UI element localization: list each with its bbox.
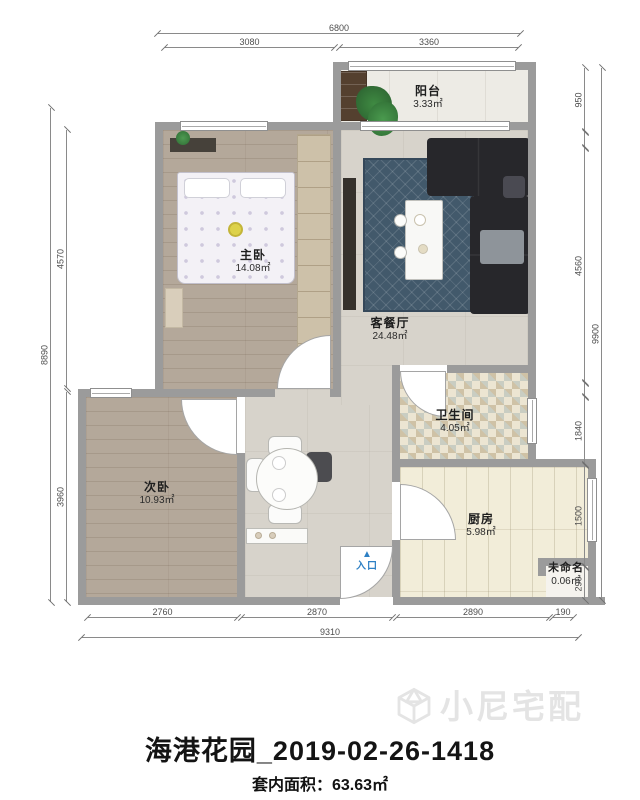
dining-table [256,448,318,510]
dim-value: 290 [575,576,584,591]
dim-value: 6800 [329,24,349,33]
stool [394,214,407,227]
watermark: 小尼宅配 [394,686,584,726]
wall [330,389,341,397]
dim-top-seg: 3080 [165,47,334,48]
room-name: 主卧 [235,248,270,262]
decor-bowl [269,532,276,539]
watermark-brand: 小尼宅配 [440,690,584,723]
dim-bottom-seg: 2870 [242,617,392,618]
room-area: 4.05㎡ [435,423,474,435]
dim-top-seg: 3360 [340,47,518,48]
bench [165,288,183,328]
window [587,478,597,542]
wall [393,597,605,605]
label-balcony: 阳台 3.33㎡ [413,84,442,111]
dim-value: 190 [555,608,570,617]
plan-title: 海港花园_2019-02-26-1418 [0,729,640,768]
window [348,61,516,71]
tv-cabinet [343,178,356,310]
dim-right-seg: 290 [584,567,585,600]
room-name: 未命名 [548,562,584,575]
wall [392,459,596,467]
dim-left-seg: 3960 [66,392,67,602]
dim-left-seg: 4570 [66,130,67,388]
room-hallway-connector[interactable] [341,365,392,405]
wall [237,453,245,597]
balcony-sliding-door [360,121,510,131]
room-name: 阳台 [413,84,442,98]
plant-small-icon [176,131,190,145]
area-summary-value: 63.63㎡ [332,777,388,794]
room-name: 卫生间 [435,408,474,422]
entry-label: 入口 [352,560,382,573]
dim-value: 4560 [575,255,584,275]
dim-right-seg: 1500 [584,465,585,567]
room-area: 5.98㎡ [466,527,495,539]
dim-value: 1840 [575,421,584,441]
place-setting [272,456,286,470]
wall [333,62,341,130]
label-kitchen: 厨房 5.98㎡ [466,512,495,539]
wall [155,122,163,397]
dim-right-seg: 4560 [584,148,585,383]
wall [528,62,536,373]
room-area: 24.48㎡ [370,331,409,343]
wall [333,122,341,397]
wall [538,558,546,576]
room-area: 3.33㎡ [413,99,442,111]
label-second-bedroom: 次卧 10.93㎡ [139,480,174,507]
wall [447,365,536,373]
decor-bowl [255,532,262,539]
tableware [418,244,428,254]
dim-right-total: 9900 [601,68,602,600]
dim-value: 950 [575,92,584,107]
dim-bottom-seg: 2760 [88,617,237,618]
dim-value: 8890 [41,345,50,365]
dim-value: 3960 [57,487,66,507]
cube-logo-icon [394,686,434,726]
room-area: 10.93㎡ [139,495,174,507]
entry-marker: ▲ 入口 [352,550,382,573]
dim-value: 3360 [419,38,439,47]
window [527,398,537,444]
place-setting [272,488,286,502]
room-area: 14.08㎡ [235,263,270,275]
room-name: 厨房 [466,512,495,526]
area-summary-label: 套内面积： [252,777,332,794]
entry-arrow-icon: ▲ [352,550,382,560]
stool [394,246,407,259]
dim-top-total: 6800 [158,33,520,34]
sofa-pillow [503,176,525,198]
room-name: 客餐厅 [370,316,409,330]
label-living-dining: 客餐厅 24.48㎡ [370,316,409,343]
dim-value: 2870 [307,608,327,617]
dim-value: 4570 [57,249,66,269]
pillow [184,178,230,198]
dim-value: 9310 [320,628,340,637]
sofa-throw-blanket [480,230,524,264]
area-summary: 套内面积：63.63㎡ [0,771,640,795]
window [180,121,268,131]
dim-bottom-total: 9310 [82,637,578,638]
dim-left-total: 8890 [50,108,51,602]
dim-right-seg: 1840 [584,397,585,465]
dim-value: 2890 [463,608,483,617]
floor-plan-canvas[interactable]: 主卧 14.08㎡ 客餐厅 24.48㎡ 阳台 3.33㎡ 卫生间 4.05㎡ … [0,0,640,670]
pillow [240,178,286,198]
dim-value: 3080 [239,38,259,47]
room-name: 次卧 [139,480,174,494]
label-bathroom: 卫生间 4.05㎡ [435,408,474,435]
dim-bottom-seg: 2890 [397,617,549,618]
label-master-bedroom: 主卧 14.08㎡ [235,248,270,275]
tableware [414,214,426,226]
window [90,388,132,398]
dim-value: 1500 [575,506,584,526]
bed-accent-cushion [228,222,243,237]
dim-value: 2760 [152,608,172,617]
wall [78,389,86,605]
dim-bottom-seg: 190 [553,617,573,618]
dim-right-seg: 950 [584,68,585,132]
wall [78,597,340,605]
wall [392,540,400,597]
kitchen-island-table [405,200,443,280]
dim-value: 9900 [592,324,601,344]
